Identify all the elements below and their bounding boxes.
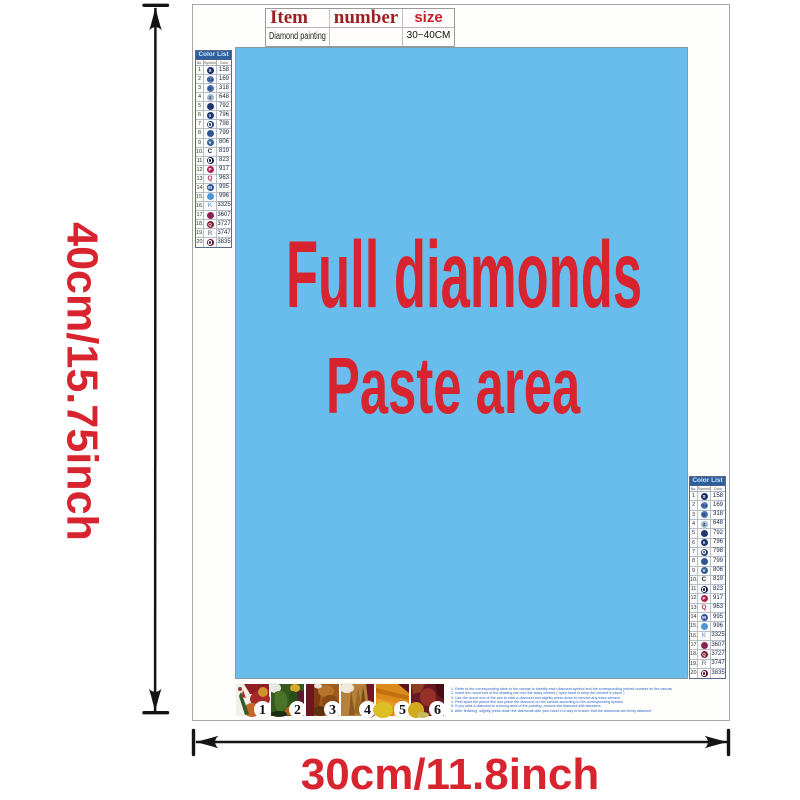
svg-text:1: 1 — [259, 703, 266, 718]
svg-text:2: 2 — [294, 703, 301, 718]
svg-text:4: 4 — [364, 703, 371, 718]
svg-text:5: 5 — [399, 703, 406, 718]
svg-text:6: 6 — [434, 703, 441, 718]
svg-text:3: 3 — [329, 703, 336, 718]
